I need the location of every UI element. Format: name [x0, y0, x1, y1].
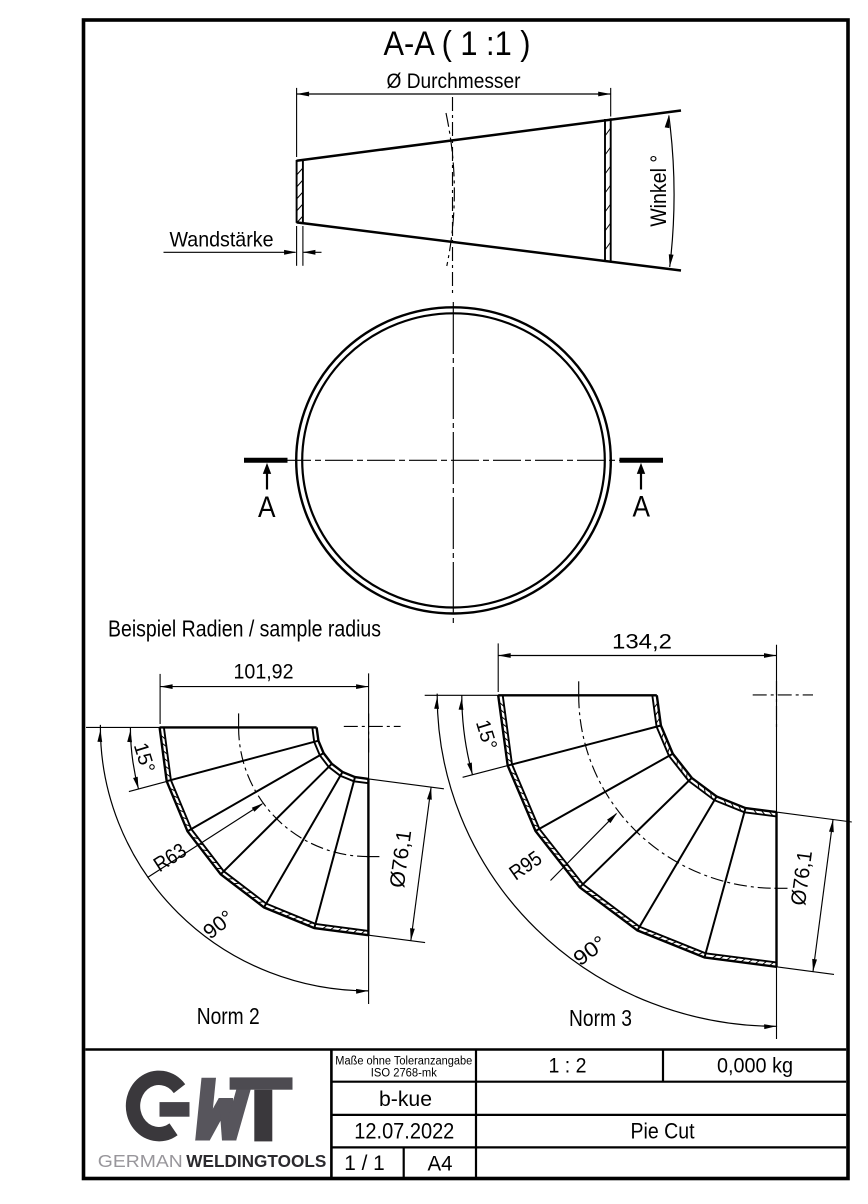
- svg-text:1 : 2: 1 : 2: [549, 1055, 587, 1078]
- svg-text:A: A: [258, 491, 276, 524]
- svg-text:GERMAN: GERMAN: [98, 1151, 183, 1171]
- svg-text:A: A: [632, 491, 650, 524]
- svg-text:A-A ( 1 :1 ): A-A ( 1 :1 ): [384, 25, 531, 63]
- svg-text:Wandstärke: Wandstärke: [170, 227, 274, 251]
- svg-text:WELDINGTOOLS: WELDINGTOOLS: [186, 1151, 326, 1171]
- svg-text:Ø Durchmesser: Ø Durchmesser: [387, 70, 521, 93]
- svg-text:ISO 2768-mk: ISO 2768-mk: [371, 1068, 437, 1080]
- svg-text:Norm 3: Norm 3: [569, 1005, 632, 1031]
- svg-text:Norm 2: Norm 2: [197, 1003, 260, 1029]
- svg-text:A4: A4: [428, 1153, 453, 1176]
- svg-text:Pie Cut: Pie Cut: [631, 1119, 695, 1144]
- svg-text:Winkel °: Winkel °: [646, 155, 671, 227]
- svg-text:1 / 1: 1 / 1: [344, 1152, 385, 1175]
- svg-text:Beispiel Radien / sample radiu: Beispiel Radien / sample radius: [108, 615, 381, 641]
- svg-text:Maße ohne Toleranzangabe: Maße ohne Toleranzangabe: [335, 1055, 472, 1067]
- svg-text:12.07.2022: 12.07.2022: [354, 1119, 454, 1144]
- svg-text:134,2: 134,2: [612, 631, 672, 654]
- svg-text:101,92: 101,92: [234, 660, 294, 683]
- svg-text:b-kue: b-kue: [379, 1088, 432, 1111]
- svg-text:0,000 kg: 0,000 kg: [717, 1055, 793, 1078]
